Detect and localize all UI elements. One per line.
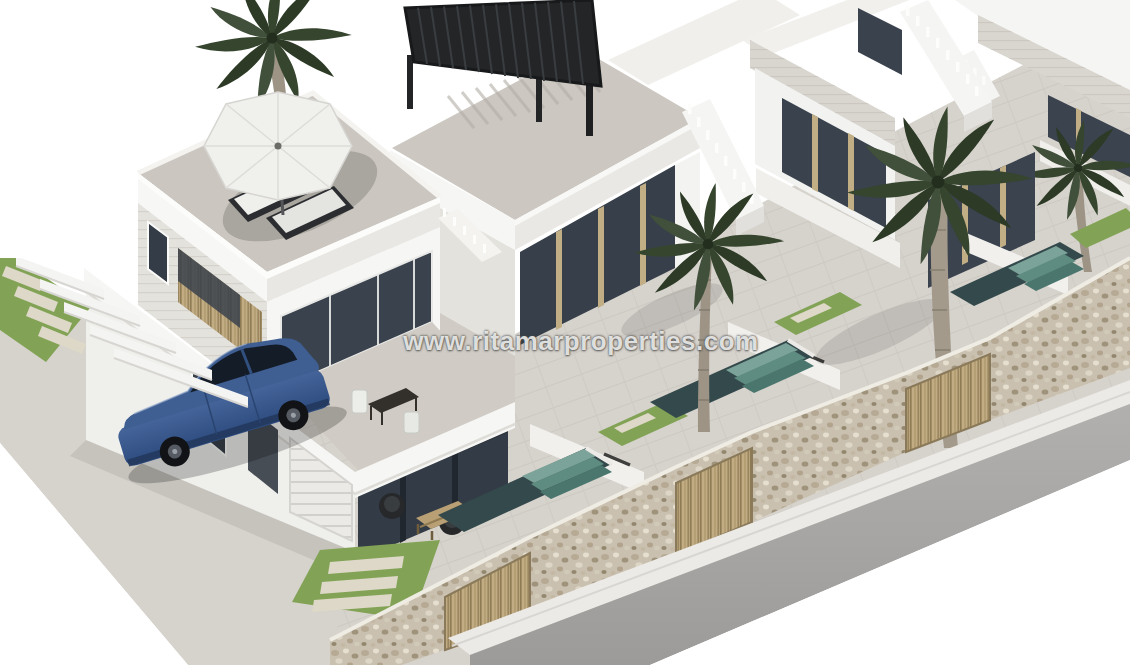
- render-margin-top-left: [0, 0, 88, 258]
- render-image: www.ritamarproperties.com: [0, 0, 1130, 665]
- scene-svg: [0, 0, 1130, 665]
